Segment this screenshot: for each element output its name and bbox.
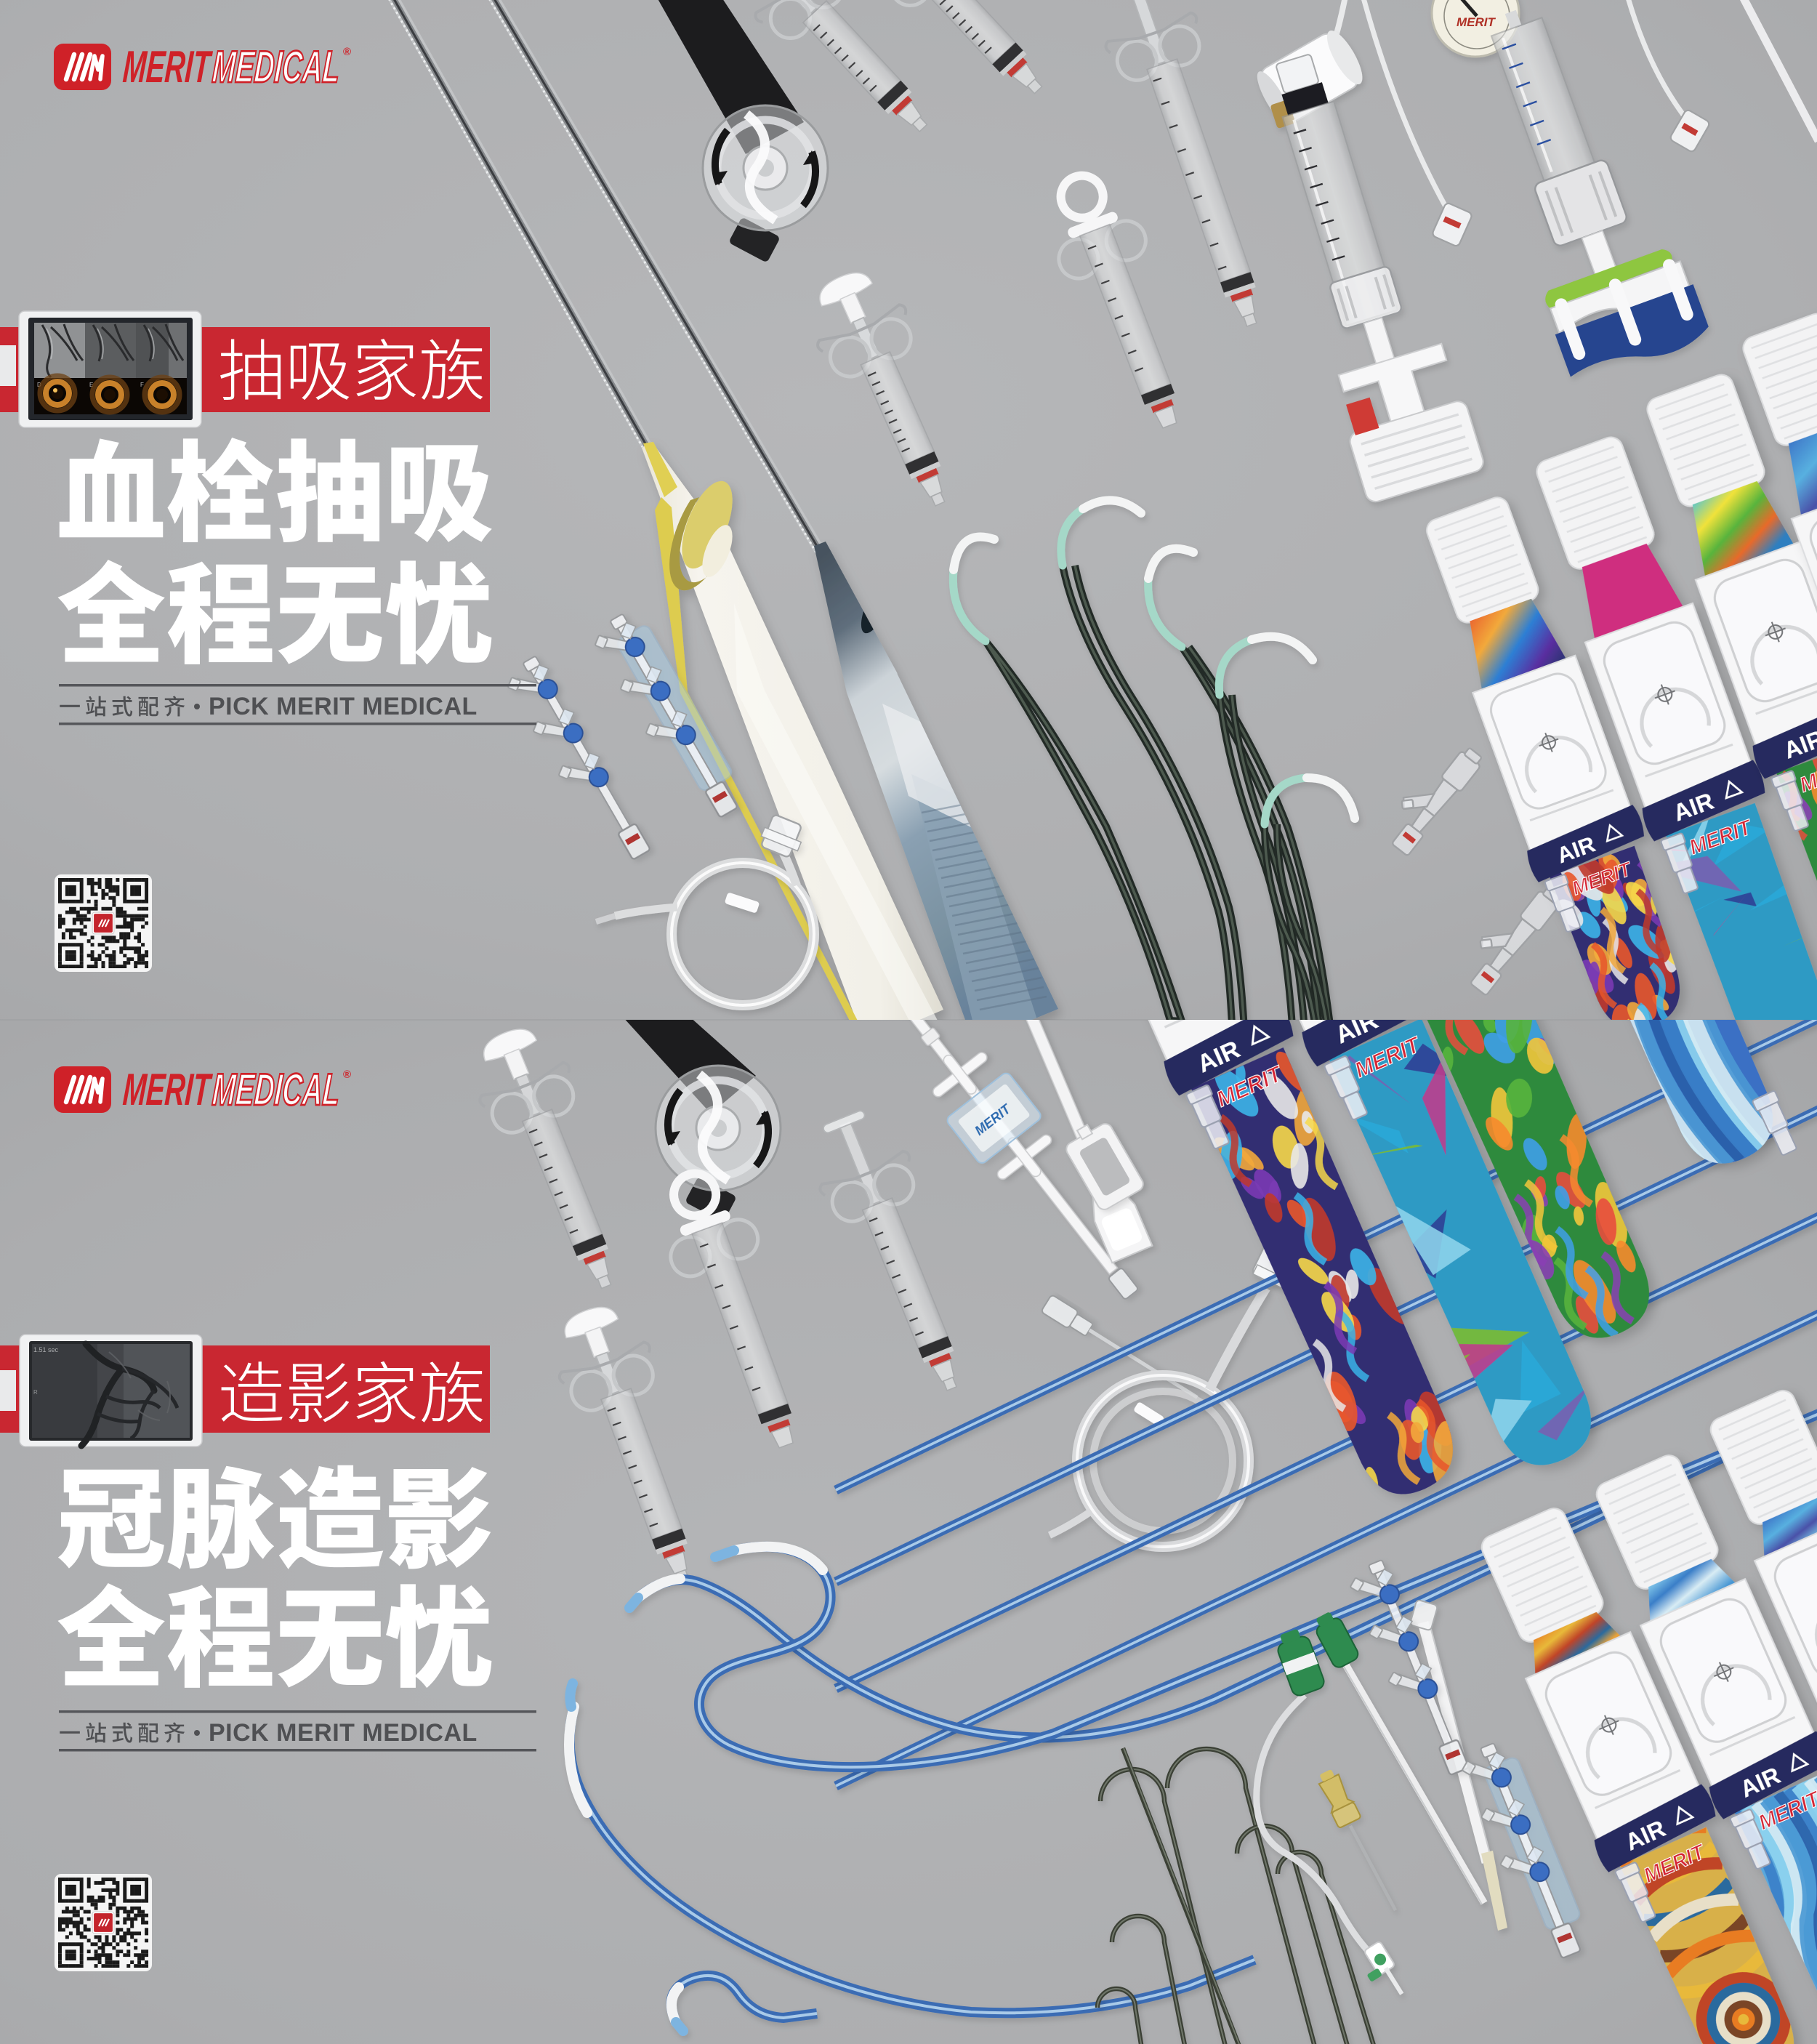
svg-text:R: R bbox=[33, 1389, 38, 1396]
svg-text:1.51 sec: 1.51 sec bbox=[33, 1346, 59, 1353]
svg-text:®: ® bbox=[343, 1069, 351, 1081]
svg-text:PICK MERIT MEDICAL: PICK MERIT MEDICAL bbox=[209, 693, 478, 720]
svg-text:MERIT: MERIT bbox=[121, 1064, 214, 1115]
svg-text:MERIT: MERIT bbox=[1457, 15, 1496, 29]
svg-text:PICK MERIT MEDICAL: PICK MERIT MEDICAL bbox=[209, 1719, 478, 1747]
svg-text:MERIT: MERIT bbox=[121, 41, 214, 92]
svg-text:F: F bbox=[140, 382, 144, 388]
svg-text:MEDICAL: MEDICAL bbox=[211, 1064, 342, 1115]
svg-text:MEDICAL: MEDICAL bbox=[211, 41, 342, 92]
svg-text:®: ® bbox=[343, 46, 351, 58]
